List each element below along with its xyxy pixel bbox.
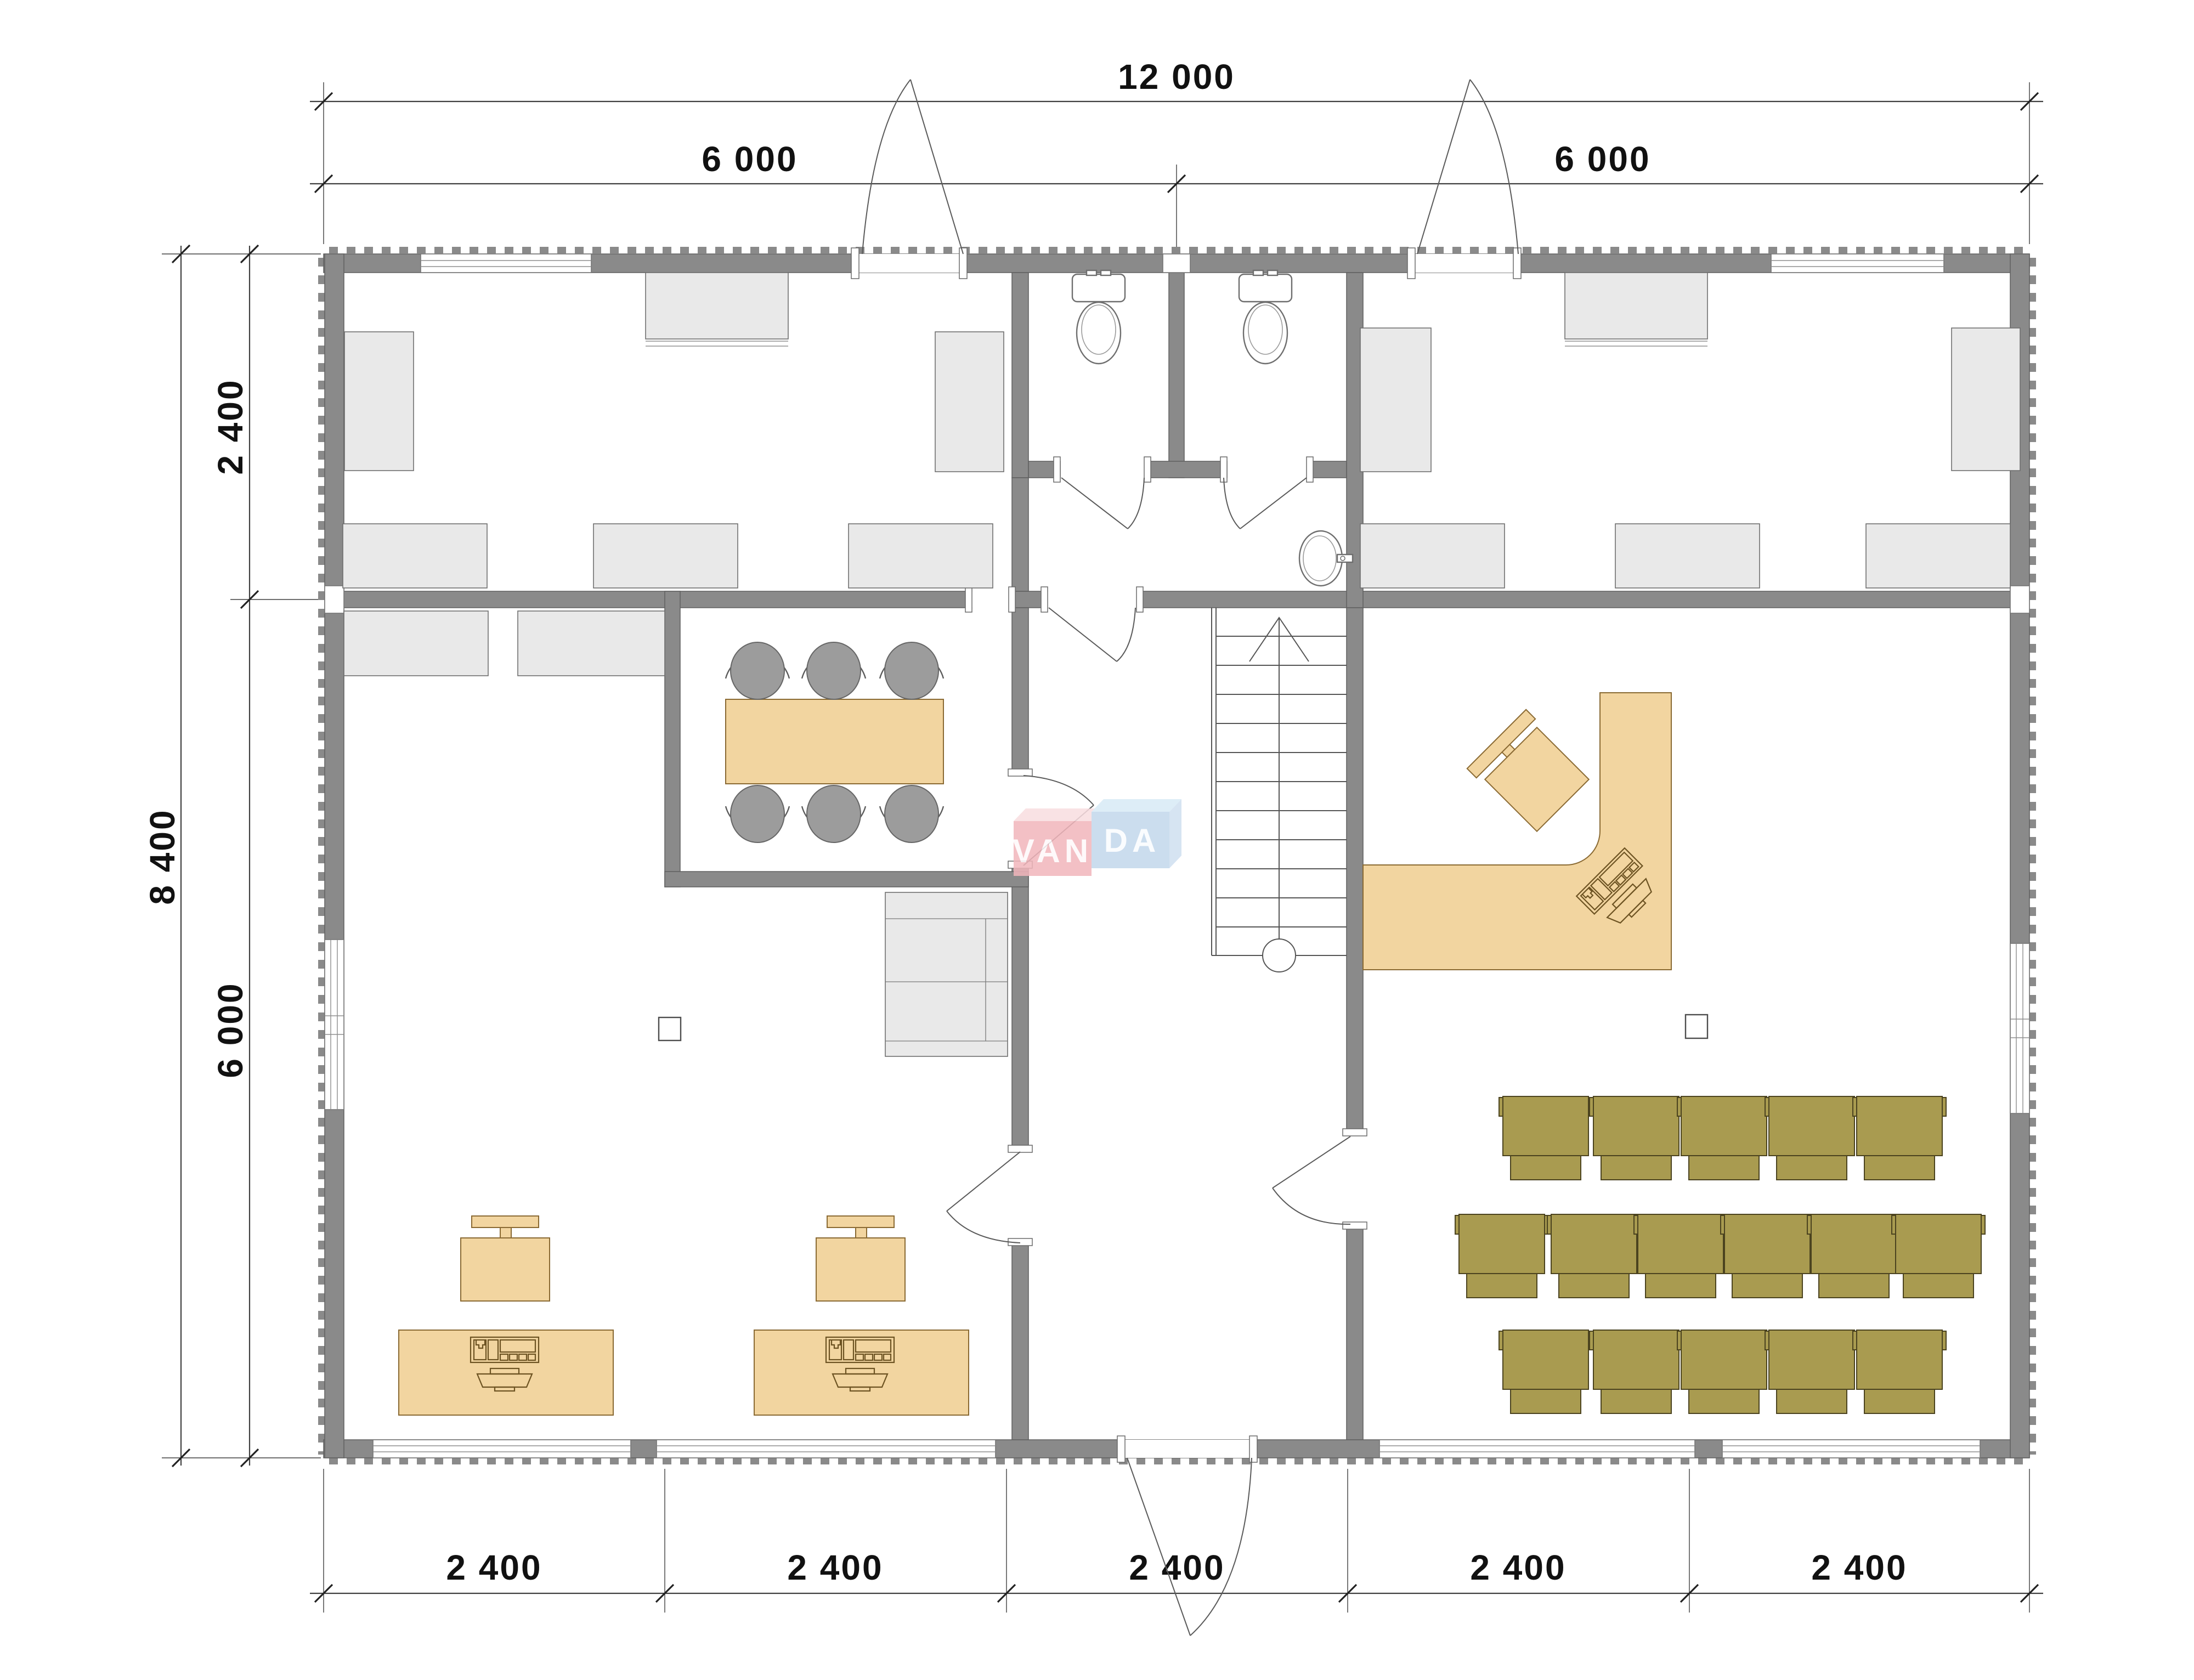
cabinet (1360, 524, 1505, 588)
stairs-icon (1212, 608, 1347, 972)
auditorium-chair-icon (1765, 1330, 1858, 1413)
wc-front-wall-b (1145, 461, 1227, 478)
meeting-chair-icon (807, 785, 861, 842)
door-jamb (1136, 587, 1143, 612)
dim-bottom-3: 2 400 (1129, 1548, 1225, 1587)
door-jamb (1144, 457, 1151, 482)
meeting-chair-icon (731, 785, 784, 842)
door-opening (1048, 591, 1136, 608)
door-arc-icon (1224, 478, 1240, 529)
door-opening (1415, 254, 1514, 273)
window-icon (421, 254, 591, 273)
meeting-room-wall-left (665, 591, 680, 887)
door-arc-icon (1128, 478, 1144, 529)
window-icon (325, 940, 344, 1110)
meeting-room-wall-bottom (665, 872, 1028, 887)
toilet-icon (1239, 270, 1292, 364)
exterior-wall-left (325, 254, 344, 1458)
interior-wall-band-left (341, 591, 972, 608)
watermark-block-top (1092, 799, 1181, 812)
auditorium-chair-icon (1853, 1330, 1946, 1413)
auditorium-chair-icon (1721, 1214, 1814, 1298)
door-arc-icon (862, 80, 911, 254)
dim-bottom-4: 2 400 (1470, 1548, 1566, 1587)
window-icon (2010, 586, 2029, 613)
auditorium-chair-icon (1892, 1214, 1985, 1298)
watermark-text-right: DA (1104, 822, 1161, 859)
dim-bottom-1: 2 400 (446, 1548, 542, 1587)
hallway-wall-right-a (1347, 608, 1363, 1135)
door-jamb (1343, 1222, 1367, 1229)
door-jamb (1343, 1129, 1367, 1136)
door-jamb (1249, 1436, 1257, 1462)
reception (1363, 693, 1671, 970)
watermark-block-top (1014, 808, 1104, 821)
hallway-wall-right-b (1347, 1223, 1363, 1440)
cabinet (849, 524, 993, 588)
auditorium-chair-icon (1499, 1096, 1592, 1180)
dim-top-right-half: 6 000 (1554, 139, 1650, 179)
sink-icon (1299, 531, 1353, 586)
auditorium-chair-icon (1634, 1214, 1727, 1298)
door-opening (972, 591, 1012, 608)
sanitary-fixtures (1072, 270, 1353, 586)
dim-bottom-2: 2 400 (787, 1548, 883, 1587)
door-leaf (1273, 1136, 1350, 1188)
cabinet (593, 524, 738, 588)
door-leaf (911, 80, 963, 254)
auditorium-chair-icon (1765, 1096, 1858, 1180)
wc-wall-middle (1169, 273, 1184, 478)
window-icon (1379, 1440, 1695, 1458)
cabinet (1866, 524, 2010, 588)
door-jamb (1117, 1436, 1125, 1462)
auditorium-chair-icon (1677, 1330, 1771, 1413)
auditorium-seating (1455, 1096, 1985, 1413)
watermark-text-left: VAN (1013, 833, 1093, 869)
stairs-newel (1263, 939, 1296, 972)
cabinet (1615, 524, 1760, 588)
floor-marker (1686, 1015, 1707, 1038)
door-leaf (1061, 478, 1128, 529)
door-jamb (1054, 457, 1060, 482)
meeting-chair-icon (885, 642, 938, 699)
window-icon (1163, 254, 1190, 273)
dim-left-upper: 2 400 (211, 378, 250, 474)
meeting-room (726, 642, 943, 842)
wardrobe (646, 273, 788, 339)
cabinet (344, 611, 488, 676)
office-chair-icon (816, 1216, 905, 1301)
door-opening (858, 254, 960, 273)
interior-wall-band-right (1137, 591, 2012, 608)
office-chair-icon (1467, 710, 1592, 835)
hallway-wall-left-a (1012, 608, 1028, 774)
hallway-wall-left-c (1012, 1240, 1028, 1440)
meeting-chair-icon (885, 785, 938, 842)
meeting-table-icon (726, 699, 943, 784)
auditorium-chair-icon (1547, 1214, 1641, 1298)
shelf-unit (885, 892, 1008, 1056)
cabinet (343, 524, 487, 588)
meeting-chair-icon (807, 642, 861, 699)
door-leaf (1240, 478, 1307, 529)
desk (399, 1330, 613, 1415)
door-jamb (1008, 769, 1032, 776)
door-jamb (1513, 248, 1521, 279)
dim-left-lower: 6 000 (211, 982, 250, 1078)
door-jamb (851, 248, 859, 279)
office-chair-icon (461, 1216, 550, 1301)
auditorium-chair-icon (1677, 1096, 1771, 1180)
auditorium-chair-icon (1807, 1214, 1901, 1298)
desk (754, 1330, 969, 1415)
floor-plan-canvas: 12 000 6 000 6 000 8 400 2 400 6 000 2 4… (0, 0, 2194, 1680)
door-arc-icon (1470, 80, 1518, 254)
door-jamb (1008, 1145, 1032, 1152)
window-icon (373, 1440, 631, 1458)
door-jamb (1009, 587, 1015, 612)
cabinet (935, 332, 1004, 472)
cabinet (518, 611, 665, 676)
door-arc-icon (1024, 776, 1094, 805)
hallway-wall-left-b (1012, 868, 1028, 1152)
auditorium-chair-icon (1590, 1096, 1683, 1180)
door-arc-icon (1117, 608, 1135, 661)
door-arc-icon (1190, 1458, 1252, 1636)
wardrobe (1565, 273, 1707, 339)
window-icon (1722, 1440, 1980, 1458)
cabinet (1952, 328, 2020, 471)
door-leaf (1049, 608, 1117, 661)
door-opening (1124, 1440, 1251, 1458)
door-jamb (1307, 457, 1313, 482)
door-leaf (947, 1152, 1020, 1211)
workstations (399, 1216, 969, 1415)
dim-top-left-half: 6 000 (702, 139, 798, 179)
floor-marker (659, 1017, 681, 1040)
door-arc-icon (1273, 1188, 1350, 1224)
watermark-logo: VAN DA (1013, 799, 1181, 876)
window-icon (2010, 943, 2029, 1113)
door-leaf (1127, 1458, 1190, 1636)
window-icon (325, 586, 344, 613)
window-icon (1771, 254, 1944, 273)
door-jamb (1407, 248, 1415, 279)
window-icon (657, 1440, 996, 1458)
toilet-icon (1072, 270, 1125, 364)
cabinet (1360, 328, 1431, 472)
door-jamb (1041, 587, 1048, 612)
auditorium-chair-icon (1590, 1330, 1683, 1413)
cabinet (344, 332, 414, 471)
wc-wall-left (1012, 273, 1028, 478)
auditorium-chair-icon (1499, 1330, 1592, 1413)
door-jamb (965, 587, 972, 612)
dim-left-total: 8 400 (143, 808, 182, 904)
dim-top-total: 12 000 (1118, 57, 1235, 97)
auditorium-chair-icon (1853, 1096, 1946, 1180)
vestibule-wall-left (1012, 478, 1028, 591)
meeting-chair-icon (731, 642, 784, 699)
dim-bottom-5: 2 400 (1811, 1548, 1907, 1587)
auditorium-chair-icon (1455, 1214, 1548, 1298)
door-leaf (1417, 80, 1470, 254)
